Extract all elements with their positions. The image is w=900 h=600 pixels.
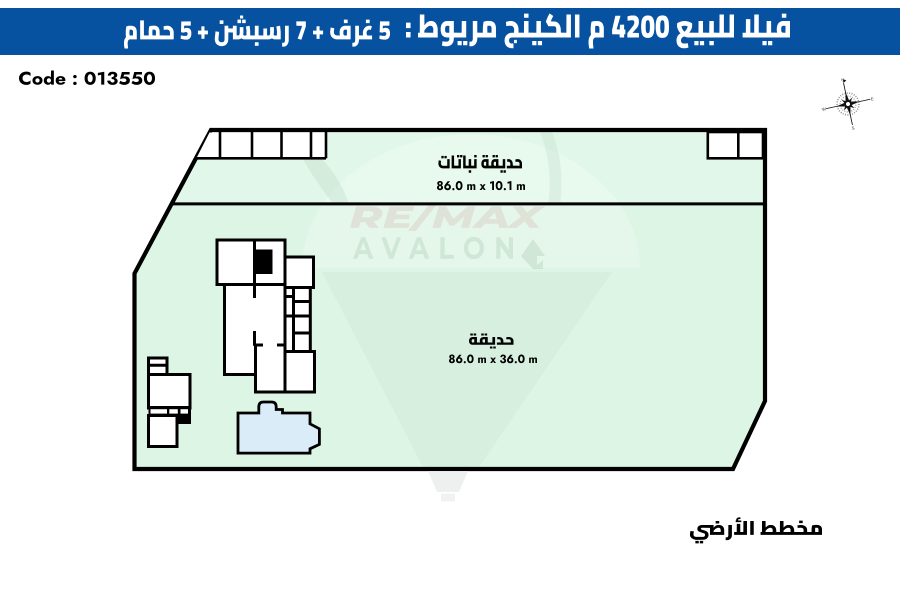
svg-text:S: S bbox=[851, 125, 855, 131]
svg-text:W: W bbox=[821, 106, 827, 112]
svg-text:N: N bbox=[841, 77, 845, 83]
svg-text:E: E bbox=[870, 96, 874, 102]
